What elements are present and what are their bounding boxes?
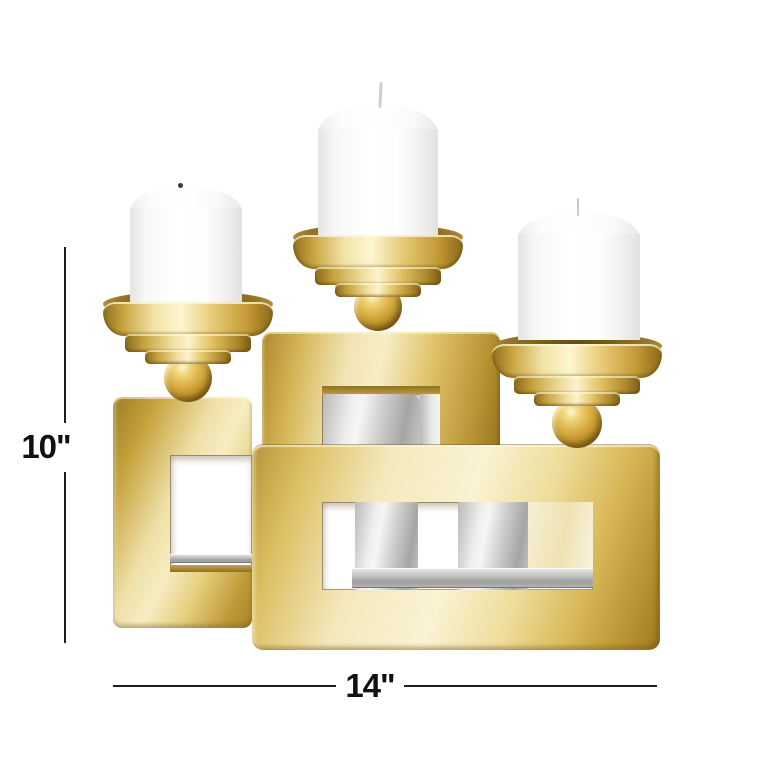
left-frame-opening bbox=[170, 455, 252, 572]
width-dimension-label: 14" bbox=[330, 668, 410, 704]
middle-cup-ring-small bbox=[335, 283, 421, 297]
width-dimension-line-left bbox=[113, 685, 336, 687]
left-candle-body bbox=[130, 208, 242, 312]
silver-frame-upright bbox=[323, 394, 420, 450]
silver-glimpse-strip bbox=[170, 554, 252, 563]
left-candle bbox=[130, 186, 242, 312]
height-dimension-label: 10" bbox=[4, 429, 88, 465]
left-candle-wick-icon bbox=[178, 183, 183, 188]
left-frame-inner-bottom-edge bbox=[170, 565, 252, 572]
front-gold-frame bbox=[252, 445, 660, 650]
height-dimension-line-lower bbox=[64, 472, 66, 643]
height-dimension-line-upper bbox=[64, 247, 66, 423]
right-candle-wick-icon bbox=[577, 198, 579, 216]
middle-candle-body bbox=[318, 129, 438, 242]
right-candle-body bbox=[518, 234, 640, 340]
left-gold-frame bbox=[113, 397, 252, 628]
right-cup-rim bbox=[492, 344, 662, 378]
back-frame-opening bbox=[322, 386, 440, 450]
product-image-canvas: 10" 14" bbox=[0, 0, 768, 768]
left-cup-rim bbox=[103, 302, 273, 336]
back-gold-frame bbox=[262, 332, 500, 450]
width-dimension-line-right bbox=[404, 685, 657, 687]
middle-cup-rim bbox=[293, 235, 463, 269]
front-frame-opening bbox=[322, 502, 593, 590]
right-candle bbox=[518, 212, 640, 340]
middle-candle bbox=[318, 104, 438, 242]
right-cup-ring-small bbox=[534, 392, 620, 406]
gold-reflection-panel bbox=[528, 502, 593, 570]
silver-frame-sliver bbox=[420, 394, 440, 450]
silver-frame-bottom-bar bbox=[352, 568, 593, 588]
left-cup-ring-small bbox=[145, 350, 231, 364]
